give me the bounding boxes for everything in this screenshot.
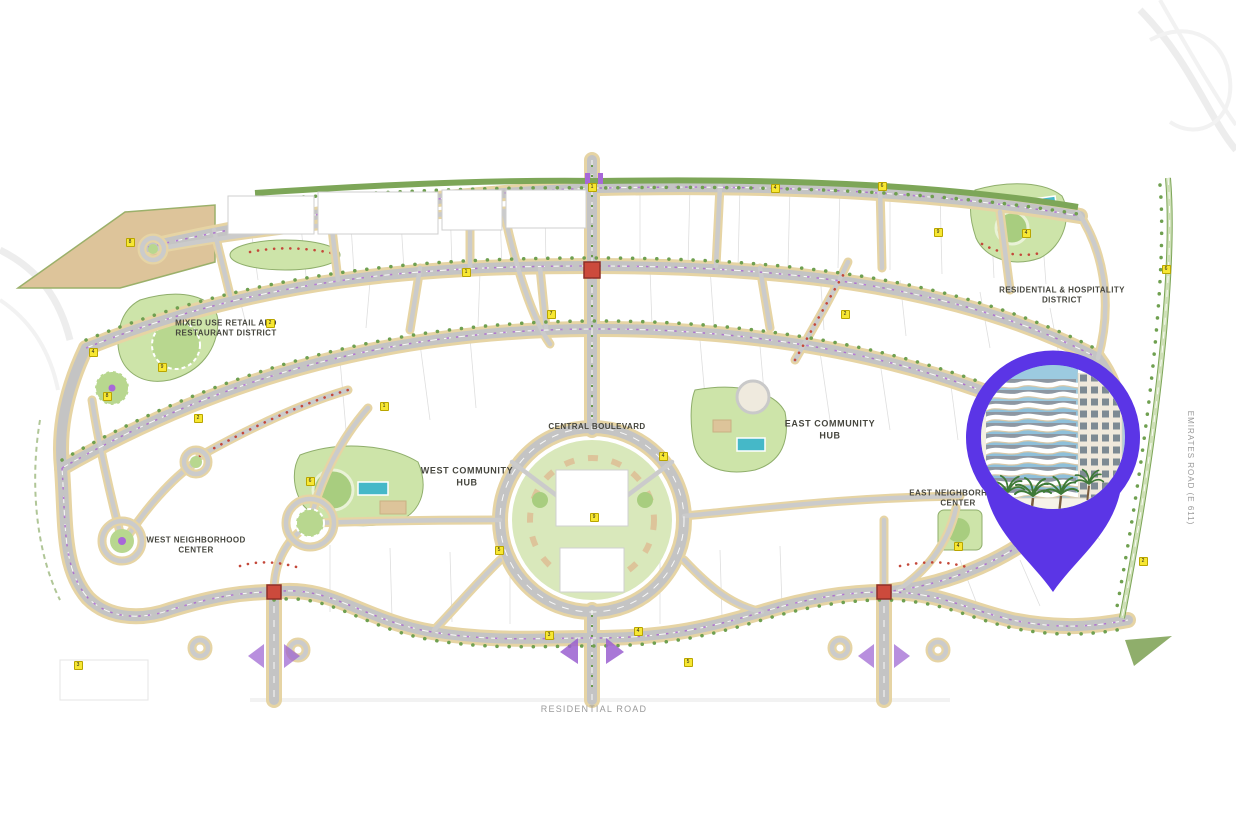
masterplan-canvas: MIXED USE RETAIL AND RESTAURANT DISTRICT… xyxy=(0,0,1236,824)
location-pin[interactable] xyxy=(0,0,1236,824)
wavy-balconies xyxy=(984,379,1078,500)
